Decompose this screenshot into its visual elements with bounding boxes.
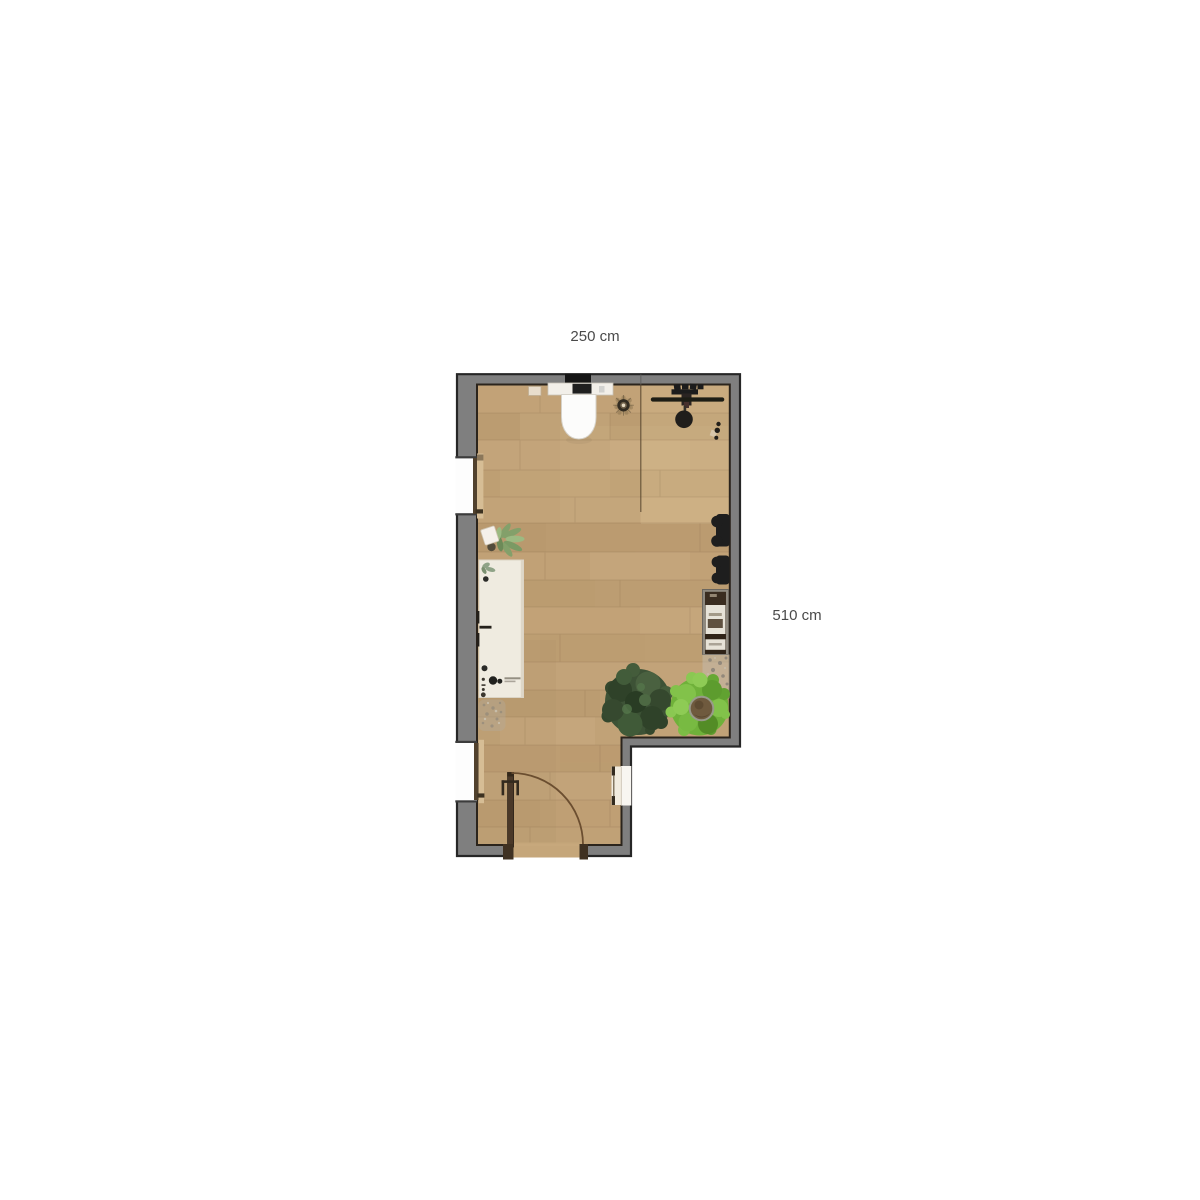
svg-text:250 cm: 250 cm (570, 328, 619, 345)
svg-text:510 cm: 510 cm (772, 607, 821, 624)
